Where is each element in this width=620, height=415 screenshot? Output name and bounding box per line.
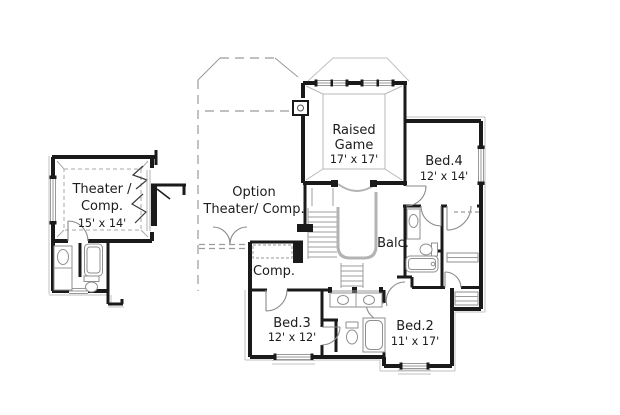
stair-railing xyxy=(338,184,376,258)
window-sills xyxy=(272,361,431,375)
room-dims-raised-game: 17' x 17' xyxy=(330,153,378,166)
sink-fixture xyxy=(364,296,375,305)
fireplace-box xyxy=(293,101,308,115)
theater-bath-fixtures xyxy=(54,244,103,292)
computer-desk xyxy=(253,245,292,258)
chimney-chase xyxy=(151,186,157,226)
bed2-closet xyxy=(447,253,478,262)
sink-fixture xyxy=(338,296,349,305)
room-label-raised-game-line2: Game xyxy=(335,138,374,153)
room-dims-bed2: 11' x 17' xyxy=(391,335,439,348)
room-label-bed2: Bed.2 xyxy=(396,319,434,334)
room-label-bed4: Bed.4 xyxy=(425,154,463,169)
toilet-fixture xyxy=(346,322,358,328)
room-label-option-line2: Theater/ Comp. xyxy=(202,202,304,217)
floor-plan-canvas: Theater / Comp. 15' x 14' Option Theater… xyxy=(0,0,620,415)
room-label-computer-nook: Comp. xyxy=(253,264,295,279)
sink-fixture xyxy=(409,215,418,228)
room-dims-theater: 15' x 14' xyxy=(78,217,126,230)
room-label-option: Option xyxy=(232,185,275,200)
room-dims-bed4: 12' x 14' xyxy=(420,170,468,183)
staircase-lower-flight xyxy=(341,263,363,288)
room-label-theater-line2: Comp. xyxy=(81,199,123,214)
room-label-raised-game: Raised xyxy=(332,123,375,138)
room-label-theater: Theater / xyxy=(71,182,132,197)
room-label-balcony: Balc. xyxy=(377,236,409,251)
jack-and-jill-bath-fixtures xyxy=(330,291,385,352)
room-label-bed3: Bed.3 xyxy=(273,316,311,331)
storage-nook xyxy=(455,292,478,305)
staircase-upper-flight xyxy=(308,188,337,259)
toilet-fixture xyxy=(84,276,99,282)
room-dims-bed3: 12' x 12' xyxy=(268,331,316,344)
hall-bath-fixtures xyxy=(406,209,438,272)
floor-plan: Theater / Comp. 15' x 14' Option Theater… xyxy=(0,0,620,415)
sink-fixture xyxy=(58,250,69,265)
